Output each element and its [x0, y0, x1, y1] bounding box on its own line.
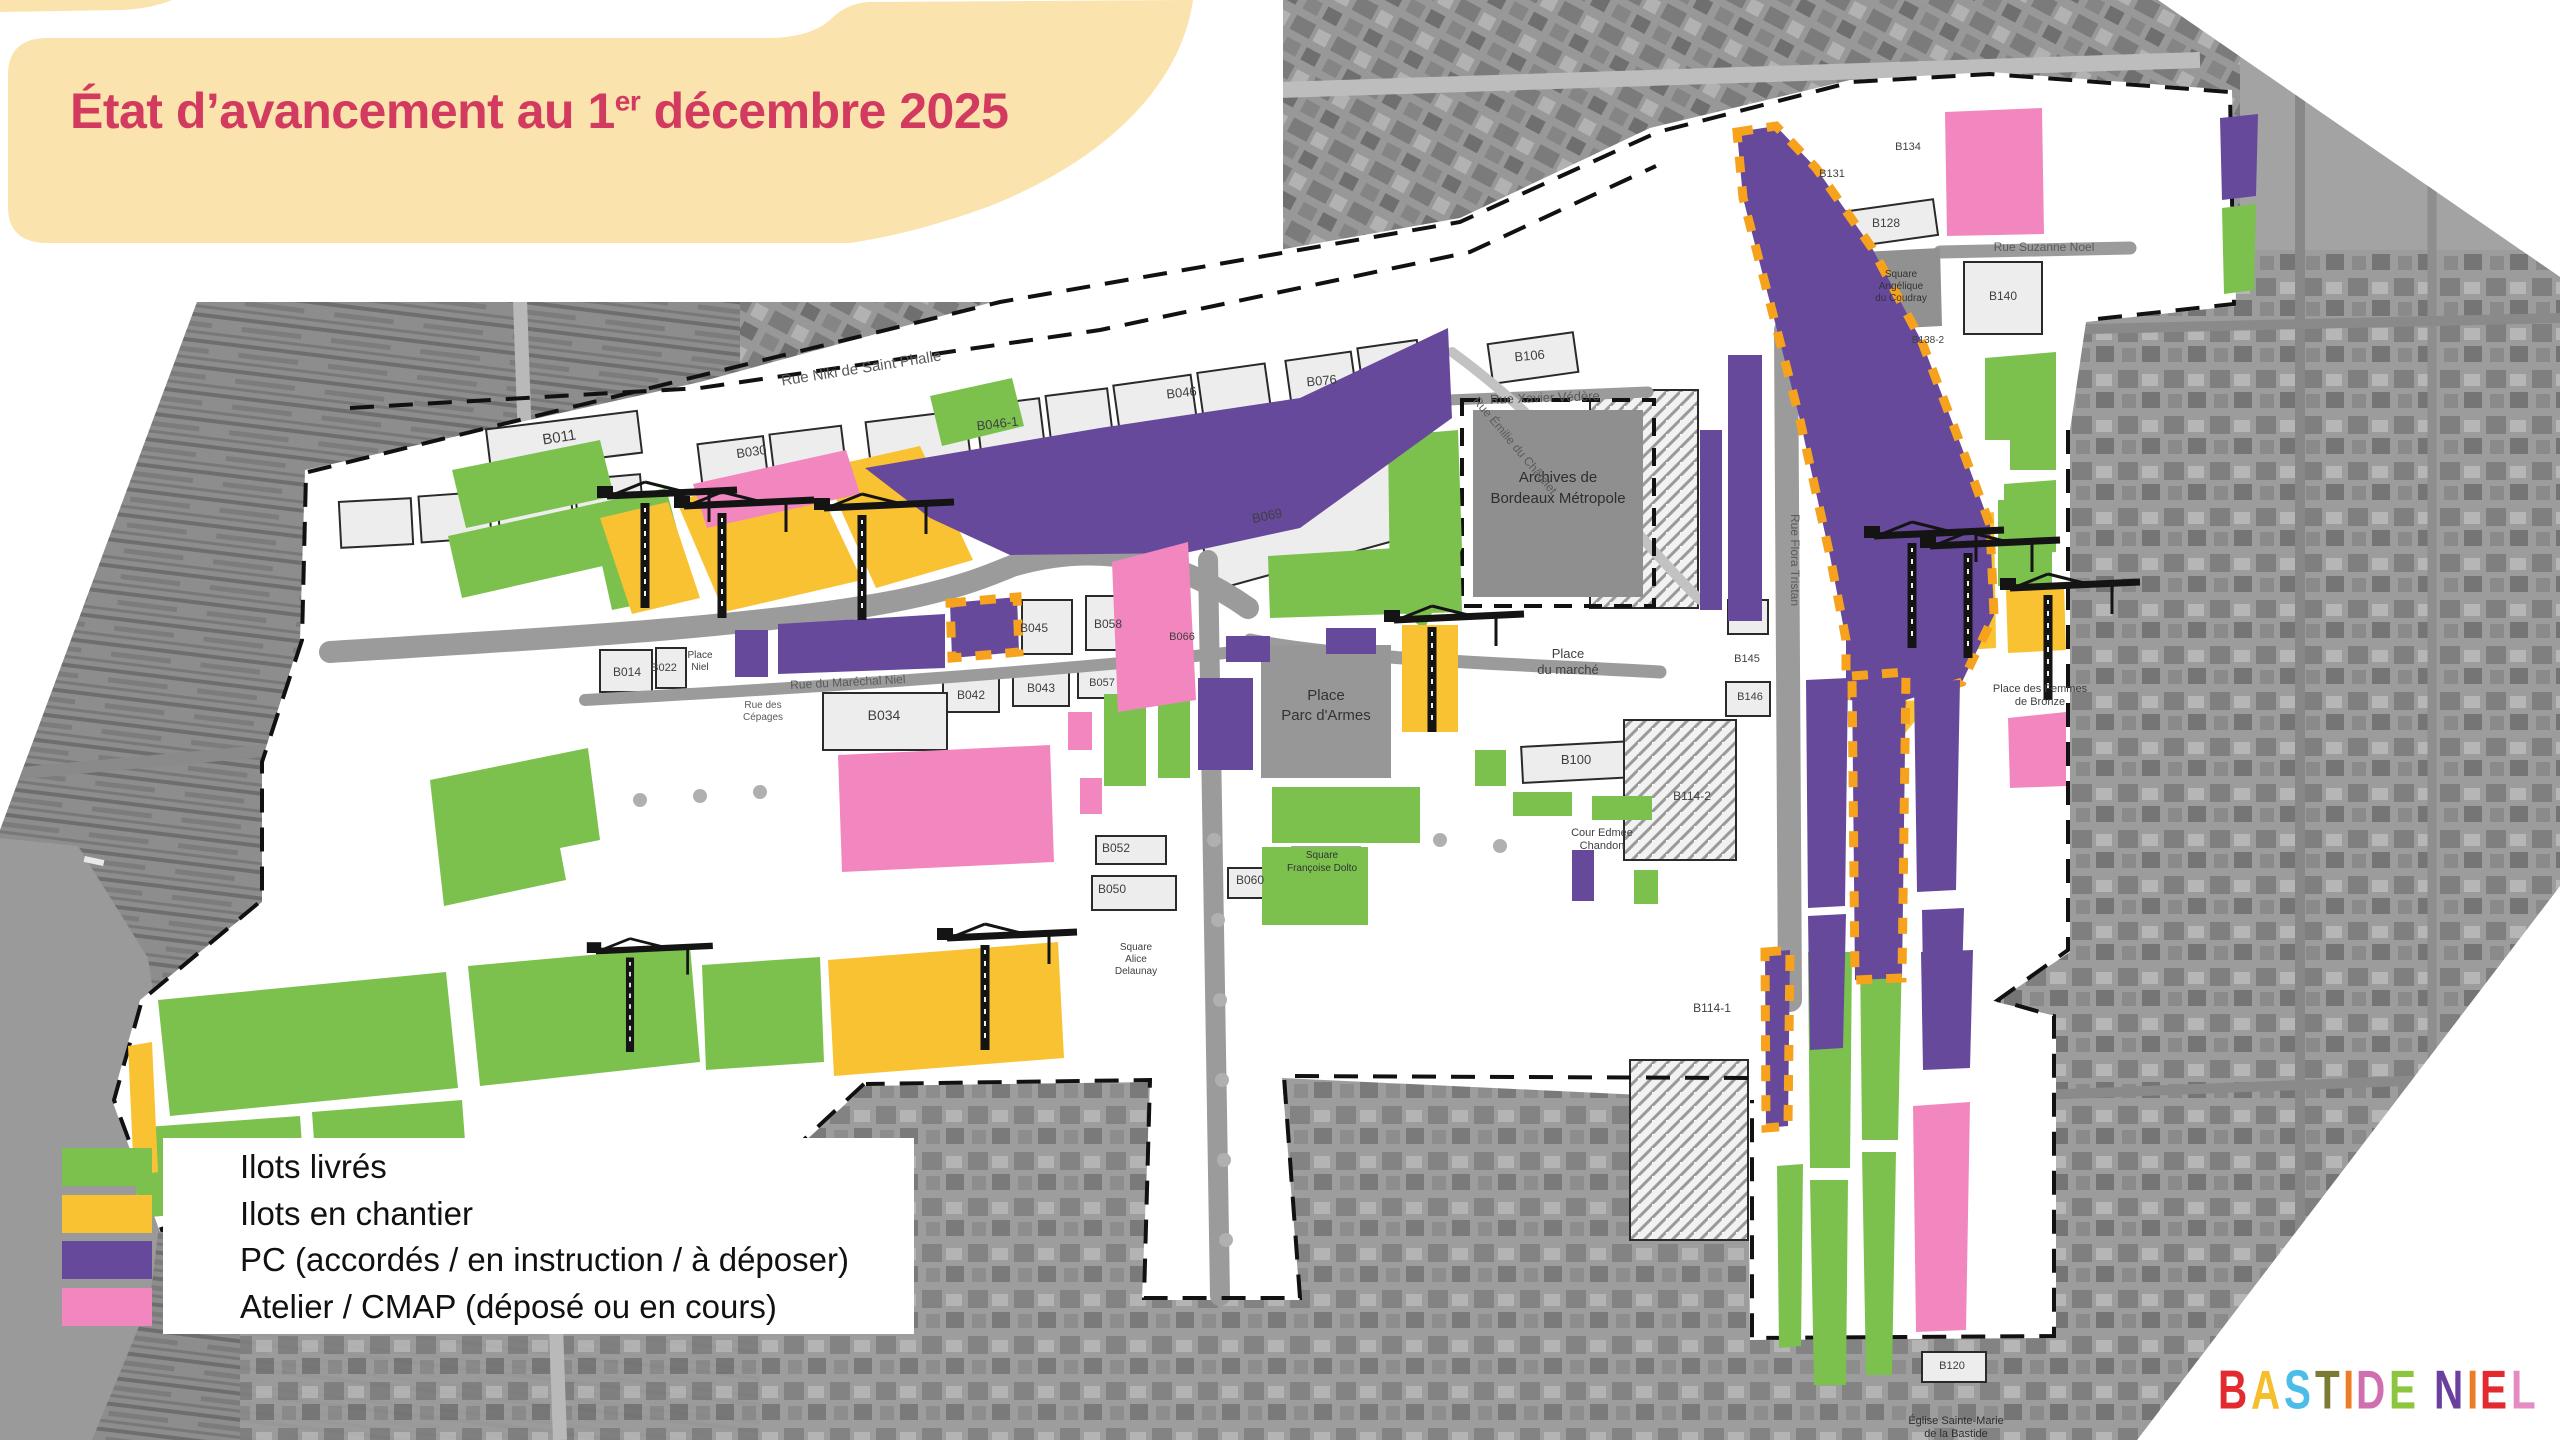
map-label: B134: [1895, 141, 1921, 153]
legend-item: Ilots livrés: [62, 1148, 387, 1186]
map-label: de Bronze: [2015, 696, 2065, 708]
map-label: B106: [1514, 347, 1546, 365]
map-label: Place des Femmes: [1993, 683, 2088, 695]
map-label: Place: [687, 650, 712, 661]
map-label: Église Sainte-Marie: [1908, 1414, 2003, 1427]
map-label: Alice: [1125, 954, 1147, 965]
title-rest: décembre 2025: [640, 83, 1008, 139]
legend-label: Ilots livrés: [240, 1148, 387, 1186]
legend-label: Ilots en chantier: [240, 1195, 473, 1233]
logo-letter: L: [2511, 1358, 2536, 1422]
logo-letter: I: [2467, 1358, 2478, 1422]
slide: Rue Niki de Saint PhalleB030B011B046-1B0…: [0, 0, 2560, 1440]
map-label: B146: [1737, 691, 1763, 703]
map-label: Angélique: [1879, 281, 1924, 292]
map-label: B022: [651, 662, 677, 674]
legend: Ilots livrésIlots en chantierPC (accordé…: [62, 1138, 932, 1338]
map-label: B042: [957, 688, 985, 702]
map-label: B076: [1306, 372, 1338, 390]
map-label: B043: [1027, 681, 1055, 695]
map-label: Cour Edmée: [1571, 827, 1633, 839]
legend-item: Atelier / CMAP (déposé ou en cours): [62, 1288, 777, 1326]
logo-letter: E: [2480, 1358, 2507, 1422]
logo-letter: E: [2389, 1358, 2416, 1422]
title-sup: er: [615, 85, 640, 116]
map-label: B120: [1939, 1360, 1965, 1372]
map-label: Chandon: [1580, 840, 1625, 852]
logo-letter: A: [2251, 1358, 2280, 1422]
map-label: B114-1: [1693, 1001, 1731, 1015]
logo-letter: N: [2434, 1358, 2463, 1422]
page-title: État d’avancement au 1er décembre 2025: [70, 82, 1170, 140]
map-label: B045: [1020, 621, 1048, 635]
map-label: Rue des: [744, 700, 781, 711]
map-label: B114-2: [1673, 789, 1711, 803]
legend-swatch-purple: [62, 1241, 152, 1279]
map-label: Square: [1885, 269, 1918, 280]
map-label: du marché: [1537, 662, 1598, 677]
map-label: Place: [1552, 646, 1585, 661]
banner-shape: [0, 0, 172, 12]
map-label: B066: [1169, 631, 1195, 643]
map-label: Niel: [691, 662, 708, 673]
parcel-dashed-outline: [1765, 950, 1790, 1128]
map-label: de la Bastide: [1924, 1428, 1988, 1440]
map-label: Cépages: [743, 712, 783, 723]
map-label: Delaunay: [1115, 966, 1157, 977]
map-label: Place: [1307, 687, 1345, 704]
logo-letter: T: [2315, 1358, 2340, 1422]
map-label: B052: [1102, 841, 1130, 855]
legend-swatch-pink: [62, 1288, 152, 1326]
map-label: Square: [1306, 850, 1339, 861]
logo-letter: I: [2343, 1358, 2354, 1422]
map-label: B138-2: [1912, 335, 1945, 346]
map-label: Bordeaux Métropole: [1490, 490, 1625, 507]
map-label: B014: [613, 665, 641, 679]
logo-letter: S: [2284, 1358, 2311, 1422]
map-label: Rue Flora Tristan: [1788, 514, 1802, 606]
legend-label: PC (accordés / en instruction / à dépose…: [240, 1241, 849, 1279]
map-label: B057: [1089, 677, 1115, 689]
legend-swatch-green: [62, 1148, 152, 1186]
map-label: B046: [1166, 383, 1198, 401]
legend-label: Atelier / CMAP (déposé ou en cours): [240, 1288, 777, 1326]
map-label: B100: [1561, 752, 1591, 767]
map-label: B140: [1989, 289, 2017, 303]
map-label: B034: [868, 707, 901, 723]
map-label: B128: [1872, 216, 1900, 230]
map-label: Square: [1120, 942, 1153, 953]
map-label: B131: [1819, 168, 1845, 180]
map-label: B050: [1098, 882, 1126, 896]
map-label: B058: [1094, 617, 1122, 631]
bastide-niel-logo: BASTIDE NIEL: [2218, 1358, 2538, 1422]
map-label: Parc d'Armes: [1281, 707, 1371, 724]
map-label: du Coudray: [1875, 293, 1927, 304]
map-label: Rue Suzanne Noel: [1994, 240, 2095, 254]
logo-letter: D: [2356, 1358, 2385, 1422]
title-main: État d’avancement au 1: [70, 83, 615, 139]
map-label: Françoise Dolto: [1287, 863, 1357, 874]
map-label: B060: [1236, 873, 1264, 887]
parcel-dashed-outline: [1852, 672, 1906, 980]
parcel-dashed-outline: [950, 597, 1019, 658]
legend-item: PC (accordés / en instruction / à dépose…: [62, 1241, 849, 1279]
legend-item: Ilots en chantier: [62, 1195, 473, 1233]
map-label: B145: [1734, 653, 1760, 665]
logo-letter: B: [2218, 1358, 2247, 1422]
legend-swatch-orange: [62, 1195, 152, 1233]
logo-letter: [2420, 1358, 2432, 1422]
